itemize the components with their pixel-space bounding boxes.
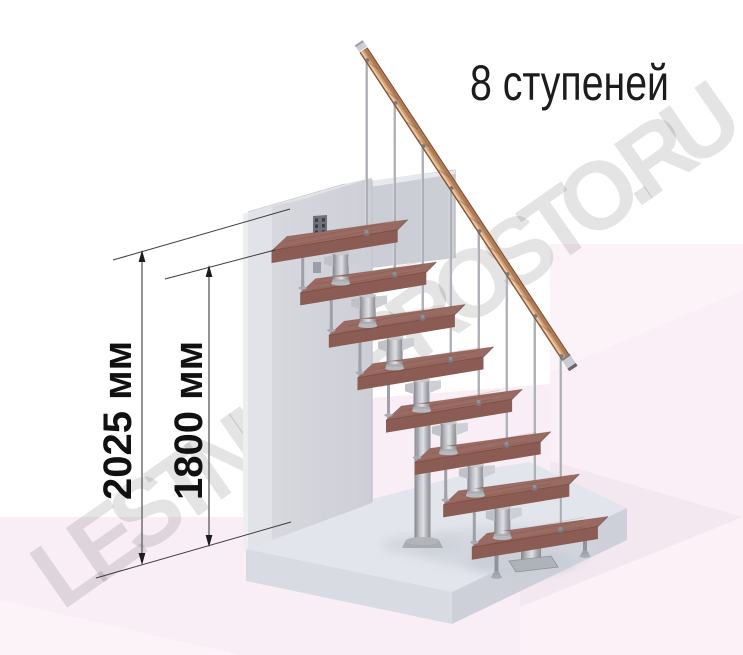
svg-text:1800 мм: 1800 мм (167, 341, 211, 500)
svg-text:2025 мм: 2025 мм (96, 341, 140, 500)
svg-text:8 ступеней: 8 ступеней (470, 55, 669, 111)
